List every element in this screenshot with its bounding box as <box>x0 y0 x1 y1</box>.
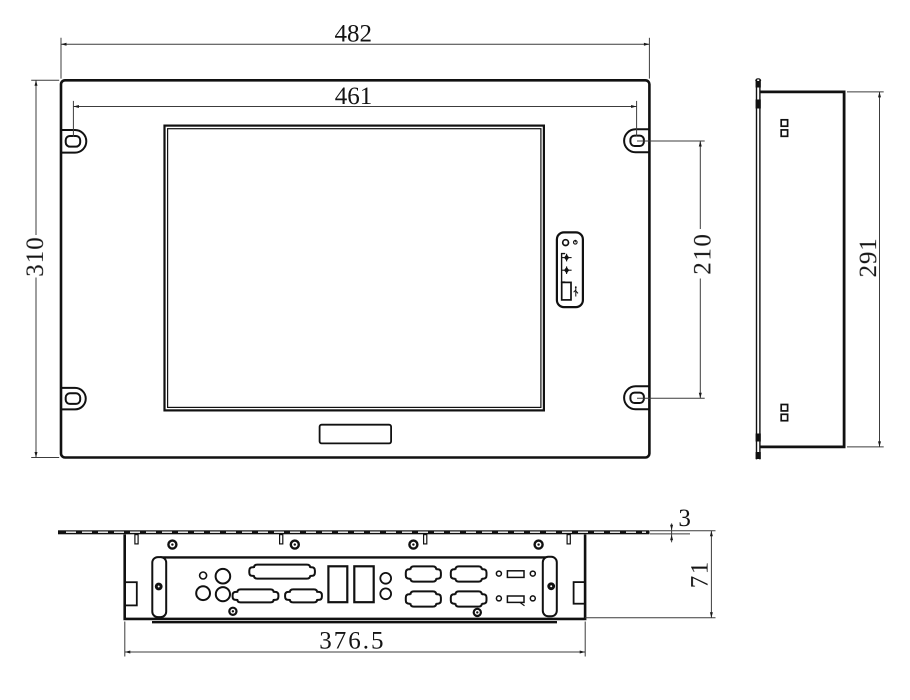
svg-text:482: 482 <box>334 21 372 48</box>
svg-text:310: 310 <box>22 236 49 277</box>
svg-text:3: 3 <box>678 505 691 532</box>
svg-text:376.5: 376.5 <box>319 627 385 654</box>
svg-text:71: 71 <box>687 560 714 588</box>
svg-text:210: 210 <box>689 232 716 274</box>
svg-text:291: 291 <box>855 238 882 278</box>
svg-text:461: 461 <box>335 83 373 110</box>
